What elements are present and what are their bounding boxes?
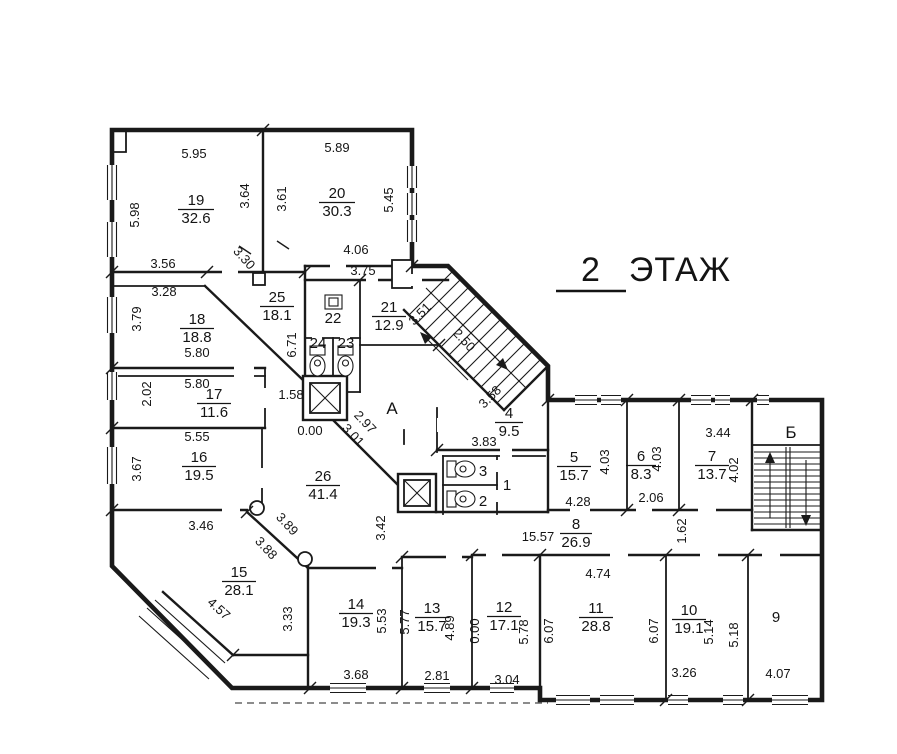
room-label-5: 5 15.7: [557, 449, 591, 484]
dim-label: 3.04: [494, 672, 519, 687]
room-label-23: 23: [338, 335, 355, 352]
floor-plan-page: 19 32.6 20 30.3 25 18.1 18 18.8 17 11.6 …: [0, 0, 897, 754]
room-number: 12: [496, 599, 513, 616]
zone-label-stairwell: Б: [785, 423, 796, 442]
room-number: 8: [572, 516, 580, 533]
room-number: 26: [315, 468, 332, 485]
window-icon: [106, 222, 118, 257]
floor-title-number: 2: [581, 251, 601, 289]
room-area: 19.1: [674, 620, 703, 637]
elevator-shaft-icon: [398, 474, 436, 512]
room-label-24: 24: [310, 335, 327, 352]
window-icon: [601, 394, 621, 406]
dim-label: 2.81: [424, 668, 449, 683]
dim-label: 6.07: [646, 618, 661, 643]
room-label-20: 20 30.3: [319, 185, 355, 220]
dim-label: 5.89: [324, 140, 349, 155]
dim-label: 5.80: [184, 345, 209, 360]
window-icon: [757, 394, 769, 406]
room-label-9: 9: [772, 609, 780, 626]
dim-label: 4.07: [765, 666, 790, 681]
room-label-3: 3: [479, 463, 487, 480]
room-area: 18.8: [182, 329, 211, 346]
window-icon: [406, 220, 418, 242]
room-area: 32.6: [181, 210, 210, 227]
dim-label: 5.55: [184, 429, 209, 444]
room-label-22: 22: [325, 310, 342, 327]
dim-label: 3.61: [274, 186, 289, 211]
room-area: 15.7: [559, 467, 588, 484]
dim-label: 3.42: [373, 515, 388, 540]
room-number: 5: [570, 449, 578, 466]
room-area: 12.9: [374, 317, 403, 334]
window-icon: [691, 394, 711, 406]
room-area: 9.5: [499, 423, 520, 440]
level-mark: 0.00: [467, 618, 482, 643]
dim-label: 1.58: [278, 387, 303, 402]
window-icon: [106, 372, 118, 400]
dim-label: 3.33: [280, 606, 295, 631]
room-number: 16: [191, 449, 208, 466]
floor-title: 2 ЭТАЖ: [556, 251, 731, 291]
column-icon: [250, 501, 264, 515]
dim-label: 4.06: [343, 242, 368, 257]
room-area: 28.1: [224, 582, 253, 599]
window-icon: [424, 682, 450, 694]
window-icon: [600, 694, 634, 706]
level-mark: 0.00: [297, 423, 322, 438]
dim-label: 4.03: [597, 449, 612, 474]
window-icon: [330, 682, 366, 694]
dim-label: 3.68: [343, 667, 368, 682]
dim-label: 5.78: [516, 619, 531, 644]
room-area: 26.9: [561, 534, 590, 551]
room-number: 7: [708, 448, 716, 465]
dim-label: 5.53: [374, 608, 389, 633]
dim-label: 3.46: [188, 518, 213, 533]
window-icon: [106, 165, 118, 200]
room-label-1: 1: [503, 477, 511, 494]
room-number: 15: [231, 564, 248, 581]
room-number: 18: [189, 311, 206, 328]
room-number: 11: [588, 600, 604, 617]
room-label-2: 2: [479, 493, 487, 510]
staircase-b-icon: [754, 447, 822, 528]
dim-label: 1.62: [674, 518, 689, 543]
dim-label: 3.56: [150, 256, 175, 271]
column-icon: [298, 552, 312, 566]
room-label-21: 21 12.9: [372, 299, 406, 334]
elevator-shaft-icon: [303, 376, 347, 420]
toilet-icon: [447, 461, 475, 477]
dim-label: 3.67: [129, 456, 144, 481]
room-number: 13: [424, 600, 441, 617]
window-icon: [575, 394, 597, 406]
room-label-7: 7 13.7: [695, 448, 729, 483]
sink-icon: [325, 295, 342, 309]
dim-label: 6.71: [284, 332, 299, 357]
room-label-8: 8 26.9: [560, 516, 592, 551]
window-icon: [106, 447, 118, 484]
room-area: 11.6: [200, 404, 228, 421]
room-number: 21: [381, 299, 398, 316]
room-area: 19.5: [184, 467, 213, 484]
dim-label: 5.95: [181, 146, 206, 161]
dim-label: 5.45: [381, 187, 396, 212]
room-label-17: 17 11.6: [197, 386, 231, 421]
window-icon: [715, 394, 730, 406]
window-icon: [406, 193, 418, 215]
room-label-14: 14 19.3: [339, 596, 373, 631]
room-number: 10: [681, 602, 698, 619]
dim-label: 3.64: [237, 183, 252, 208]
dim-label: 3.89: [273, 510, 301, 539]
floor-title-word: ЭТАЖ: [629, 251, 731, 289]
dim-label: 4.28: [565, 494, 590, 509]
room-number: 19: [188, 192, 205, 209]
dim-label: 4.89: [442, 615, 457, 640]
toilet-icon: [447, 491, 475, 507]
window-icon: [723, 694, 743, 706]
dim-label: 5.98: [127, 202, 142, 227]
room-number: 20: [329, 185, 346, 202]
duct-shaft: [392, 260, 412, 288]
dim-label: 3.51: [406, 300, 435, 329]
room-label-19: 19 32.6: [178, 192, 214, 227]
dim-label: 3.44: [705, 425, 730, 440]
room-label-18: 18 18.8: [180, 311, 214, 346]
dim-label: 6.07: [541, 618, 556, 643]
room-area: 41.4: [308, 486, 337, 503]
window-icon: [406, 166, 418, 188]
dim-label: 5.18: [726, 622, 741, 647]
room-number: 6: [637, 448, 645, 465]
dim-label: 3.79: [129, 306, 144, 331]
dim-label: 5.80: [184, 376, 209, 391]
room-label-25: 25 18.1: [260, 289, 294, 324]
window-icon: [556, 694, 590, 706]
room-number: 14: [348, 596, 365, 613]
room-area: 13.7: [697, 466, 726, 483]
room-number: 25: [269, 289, 286, 306]
dim-label: 3.75: [350, 263, 375, 278]
dim-label: 4.02: [726, 457, 741, 482]
room-label-26: 26 41.4: [306, 468, 340, 503]
room-area: 18.1: [262, 307, 291, 324]
dim-label: 5.14: [701, 619, 716, 644]
room-label-11: 11 28.8: [579, 600, 613, 635]
dim-label: 3.28: [151, 284, 176, 299]
dim-label: 3.26: [671, 665, 696, 680]
dim-label: 5.77: [397, 609, 412, 634]
room-label-16: 16 19.5: [182, 449, 216, 484]
dim-label: 15.57: [522, 529, 555, 544]
room-area: 28.8: [581, 618, 610, 635]
dim-label: 3.83: [471, 434, 496, 449]
room-area: 19.3: [341, 614, 370, 631]
room-area: 17.1: [489, 617, 518, 634]
column-icon: [253, 273, 265, 285]
room-label-15: 15 28.1: [222, 564, 256, 599]
room-label-4: 4 9.5: [495, 405, 523, 440]
dim-label: 2.02: [139, 381, 154, 406]
floor-plan-drawing: 19 32.6 20 30.3 25 18.1 18 18.8 17 11.6 …: [0, 0, 897, 754]
room-number: 4: [505, 405, 513, 422]
dim-label: 4.03: [649, 446, 664, 471]
window-icon: [106, 297, 118, 333]
dim-label: 2.06: [638, 490, 663, 505]
zone-label-lobby: А: [386, 399, 398, 418]
room-area: 30.3: [322, 203, 351, 220]
window-icon: [772, 694, 808, 706]
dim-label: 4.74: [585, 566, 610, 581]
